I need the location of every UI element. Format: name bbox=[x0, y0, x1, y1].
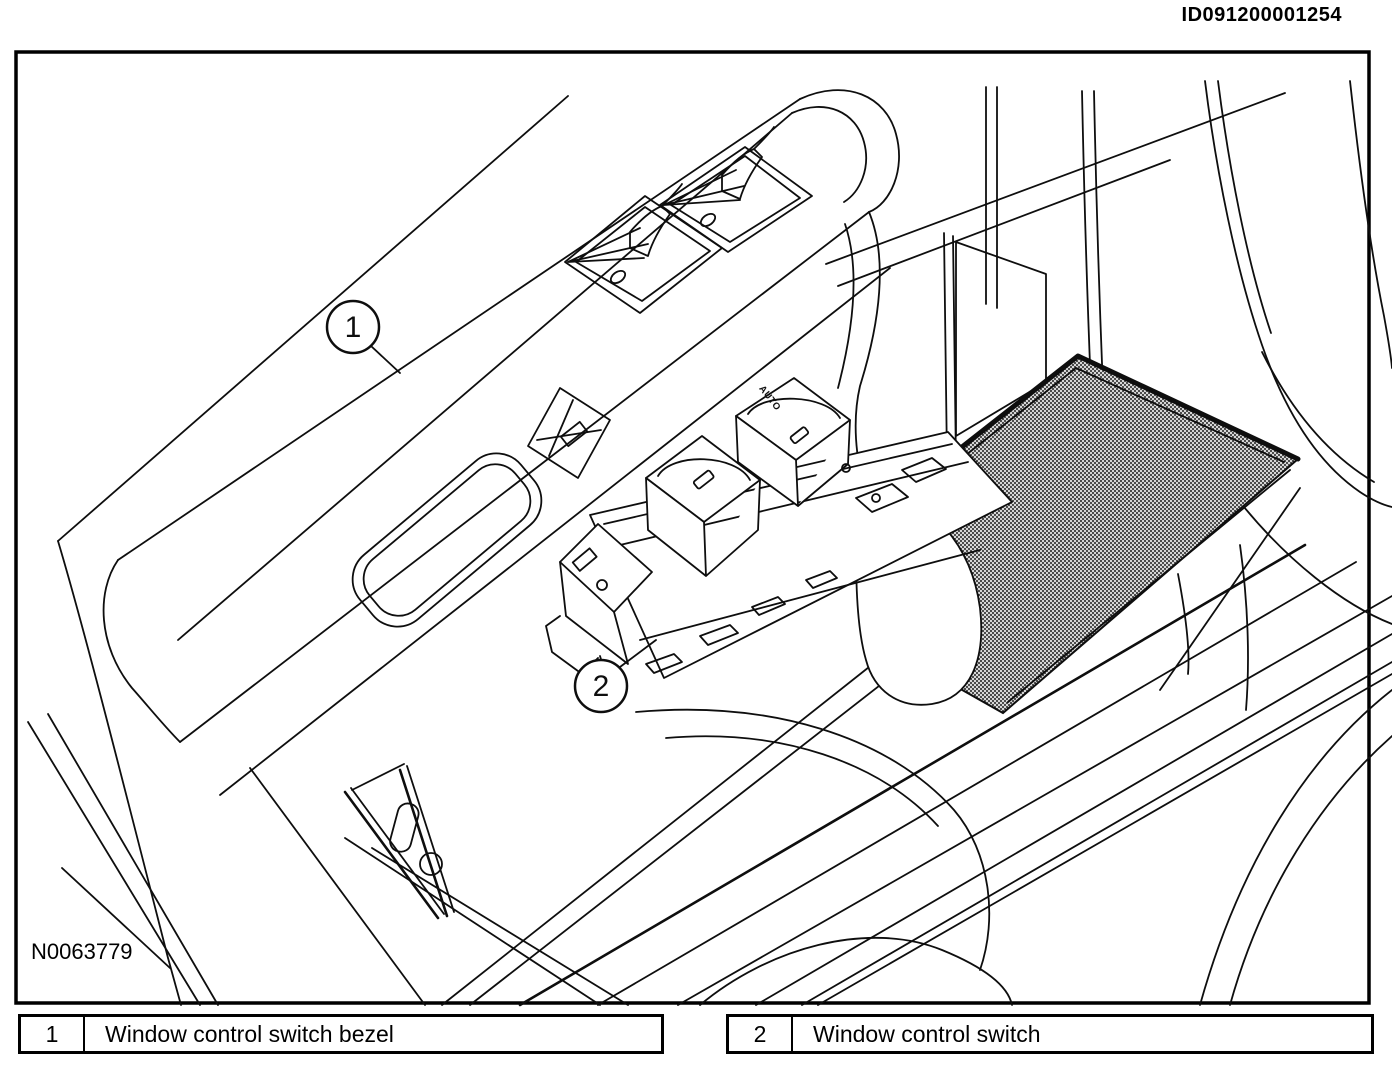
legend-1-number: 1 bbox=[21, 1017, 85, 1051]
figure-code-label: N0063779 bbox=[31, 939, 133, 965]
legend: 1 Window control switch bezel 2 Window c… bbox=[0, 1014, 1392, 1054]
legend-table-1: 1 Window control switch bezel bbox=[18, 1014, 664, 1054]
id-code-label: ID091200001254 bbox=[1182, 4, 1342, 27]
legend-2-label: Window control switch bbox=[793, 1017, 1041, 1051]
legend-2-number: 2 bbox=[729, 1017, 793, 1051]
legend-table-2: 2 Window control switch bbox=[726, 1014, 1374, 1054]
callout-1-number: 1 bbox=[345, 311, 362, 344]
door-panel-illustration: AUTO 1 2 bbox=[0, 0, 1392, 1068]
legend-1-label: Window control switch bezel bbox=[85, 1017, 394, 1051]
manual-figure-page: ID091200001254 bbox=[0, 0, 1392, 1068]
callout-2-number: 2 bbox=[593, 670, 610, 703]
